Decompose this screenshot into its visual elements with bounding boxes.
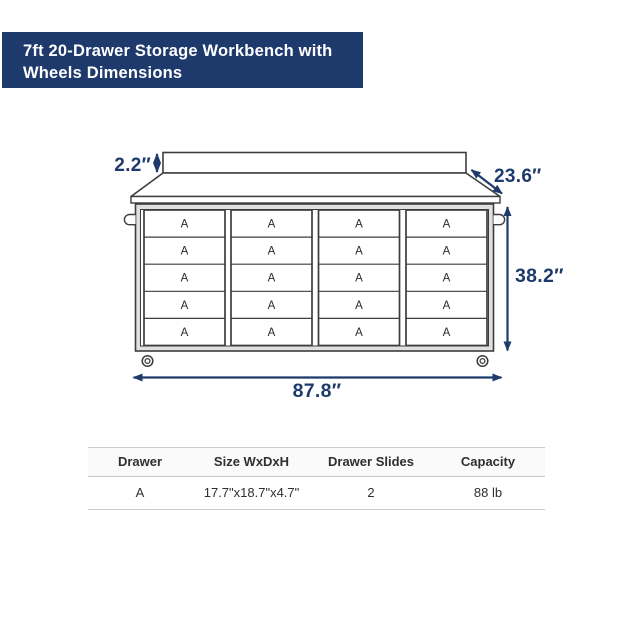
drawer-bank-1: A A A A A xyxy=(144,210,225,346)
drawer-label: A xyxy=(443,219,451,231)
drawer-bank-2: A A A A A xyxy=(231,210,312,346)
col-header-drawer: Drawer xyxy=(88,448,192,477)
drawer-label: A xyxy=(268,246,276,258)
cell-capacity: 88 lb xyxy=(431,477,545,510)
drawer-label: A xyxy=(355,300,363,312)
cell-size: 17.7"x18.7"x4.7" xyxy=(192,477,311,510)
workbench-diagram-svg: A A A A A A A A A A xyxy=(0,128,630,410)
worktop-surface xyxy=(131,173,500,197)
caster-left xyxy=(142,356,153,367)
spec-table-section: Drawer Size WxDxH Drawer Slides Capacity… xyxy=(88,447,545,510)
height-label: 38.2″ xyxy=(515,265,564,287)
drawer-label: A xyxy=(181,246,189,258)
spec-table: Drawer Size WxDxH Drawer Slides Capacity… xyxy=(88,447,545,510)
title-banner: 7ft 20-Drawer Storage Workbench with Whe… xyxy=(2,32,363,88)
col-header-size: Size WxDxH xyxy=(192,448,311,477)
spec-table-header-row: Drawer Size WxDxH Drawer Slides Capacity xyxy=(88,448,545,477)
drawer-label: A xyxy=(355,273,363,285)
backsplash xyxy=(163,153,466,174)
drawer-label: A xyxy=(268,219,276,231)
width-label: 87.8″ xyxy=(293,380,342,402)
col-header-slides: Drawer Slides xyxy=(311,448,431,477)
drawer-bank-3: A A A A A xyxy=(319,210,400,346)
page: 7ft 20-Drawer Storage Workbench with Whe… xyxy=(0,0,630,630)
drawer-label: A xyxy=(443,327,451,339)
left-handle xyxy=(124,215,135,225)
cell-drawer: A xyxy=(88,477,192,510)
worktop-front-edge xyxy=(131,197,500,204)
drawer-label: A xyxy=(181,219,189,231)
workbench-diagram: A A A A A A A A A A xyxy=(0,128,630,410)
drawer-bank-4: A A A A A xyxy=(406,210,487,346)
drawer-label: A xyxy=(443,300,451,312)
drawer-label: A xyxy=(181,300,189,312)
drawer-label: A xyxy=(355,246,363,258)
right-handle xyxy=(494,215,505,225)
drawer-label: A xyxy=(181,273,189,285)
page-title-line2: Wheels Dimensions xyxy=(23,62,353,84)
drawer-label: A xyxy=(355,327,363,339)
depth-label: 23.6″ xyxy=(494,166,542,187)
caster-right xyxy=(477,356,488,367)
backsplash-height-label: 2.2″ xyxy=(114,155,151,176)
drawer-label: A xyxy=(443,273,451,285)
drawer-label: A xyxy=(181,327,189,339)
table-row: A 17.7"x18.7"x4.7" 2 88 lb xyxy=(88,477,545,510)
cell-slides: 2 xyxy=(311,477,431,510)
drawer-label: A xyxy=(268,273,276,285)
drawer-label: A xyxy=(268,300,276,312)
drawer-label: A xyxy=(268,327,276,339)
col-header-capacity: Capacity xyxy=(431,448,545,477)
drawer-label: A xyxy=(355,219,363,231)
page-title-line1: 7ft 20-Drawer Storage Workbench with xyxy=(23,40,353,62)
drawer-label: A xyxy=(443,246,451,258)
